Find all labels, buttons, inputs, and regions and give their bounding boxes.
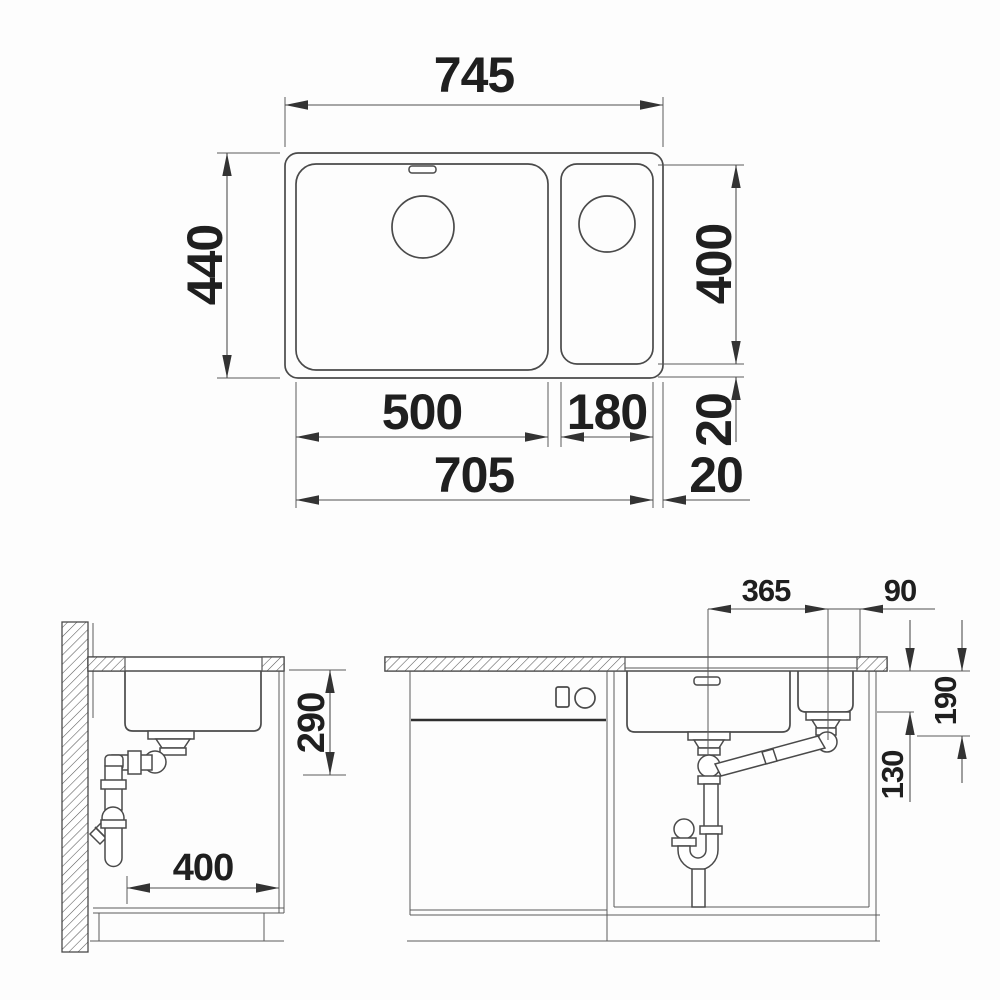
overflow-front-icon	[694, 677, 720, 685]
dim-label-440: 440	[177, 225, 233, 305]
waste-trap-front	[672, 712, 850, 907]
dim-rim-bottom: 20	[663, 447, 750, 505]
dim-label-745: 745	[434, 47, 515, 103]
dim-bowl-depths: 190 130	[875, 620, 970, 802]
dim-label-365: 365	[742, 573, 791, 608]
dim-outlet-height: 290	[289, 670, 346, 775]
countertop-front-hatch-right	[857, 657, 887, 671]
small-bowl-front	[798, 671, 853, 712]
plan-view: 745 440 400 20	[177, 47, 750, 508]
main-bowl	[296, 164, 548, 370]
dim-label-290: 290	[291, 693, 333, 753]
countertop-hatch-right	[262, 657, 284, 671]
small-bowl	[561, 164, 653, 364]
small-drain-icon	[579, 196, 635, 252]
bowl-section-side	[125, 671, 261, 731]
drawing-canvas: 745 440 400 20	[0, 0, 1000, 1000]
dim-label-400: 400	[686, 224, 742, 304]
arrow-right	[640, 100, 663, 109]
dim-main-bowl-width: 500	[296, 384, 548, 442]
sink-outer-rim	[285, 153, 663, 378]
front-view: 365 90 190 130	[385, 573, 970, 941]
dim-label-20-right: 20	[686, 393, 742, 447]
dim-label-130: 130	[875, 751, 910, 800]
countertop-front-hatch-left	[385, 657, 625, 671]
dim-label-90: 90	[884, 573, 916, 608]
dim-small-bowl-width: 180	[561, 384, 653, 442]
arrow-left	[285, 100, 308, 109]
side-view: 290 400	[62, 622, 346, 952]
dim-overall-depth: 440	[177, 153, 280, 378]
dim-overall-width: 745	[285, 47, 663, 147]
countertop-hatch-left	[88, 657, 125, 671]
dim-bowl-length: 400	[127, 847, 279, 904]
dim-label-705: 705	[434, 447, 515, 503]
dim-bowls-width: 705	[296, 447, 653, 505]
overflow-icon	[409, 166, 436, 173]
dim-label-20-bottom: 20	[689, 447, 743, 503]
dim-rim-right: 20	[686, 377, 742, 447]
dim-label-400-side: 400	[173, 847, 233, 889]
main-drain-icon	[392, 196, 454, 258]
control-rect-icon	[556, 687, 569, 707]
dim-label-500: 500	[382, 384, 462, 440]
dim-label-190: 190	[928, 677, 963, 726]
sink-technical-drawing: 745 440 400 20	[0, 0, 1000, 1000]
wall-hatch	[62, 622, 88, 952]
dim-label-180: 180	[567, 384, 647, 440]
dim-bowl-depth: 400	[658, 165, 744, 377]
control-knob-icon	[575, 688, 595, 708]
